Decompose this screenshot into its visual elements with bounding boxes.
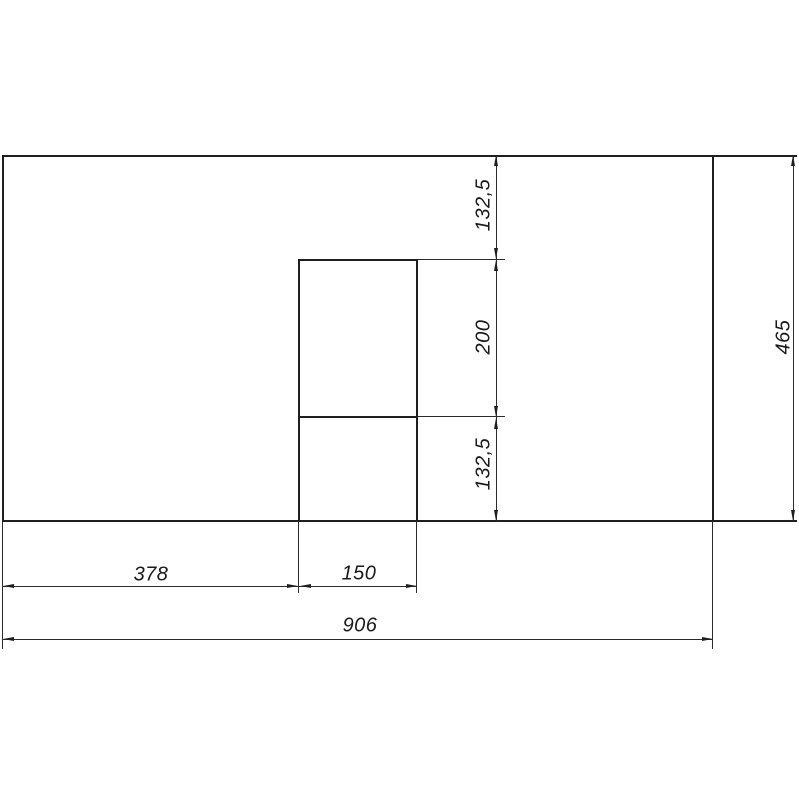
extension-line-cutout-middle [418, 416, 505, 417]
technical-drawing-canvas: 132,5 200 132,5 465 378 150 906 [0, 0, 799, 799]
arrowhead-icon [494, 418, 498, 429]
dimension-line-vertical-chain [496, 155, 497, 521]
panel-top-edge [2, 155, 797, 157]
arrowhead-icon [3, 637, 14, 641]
dim-label-overall-width: 906 [343, 615, 378, 638]
extension-line-cutout-left [298, 522, 299, 593]
arrowhead-icon [494, 260, 498, 271]
dimension-line-horizontal-chain [3, 586, 417, 587]
dim-label-bottom-segment: 132,5 [473, 438, 496, 491]
arrowhead-icon [494, 155, 498, 166]
arrowhead-icon [494, 248, 498, 259]
panel-right-edge [712, 155, 714, 522]
arrowhead-icon [406, 584, 417, 588]
arrowhead-icon [494, 510, 498, 521]
panel-left-edge [2, 155, 4, 522]
dimension-line-width-total [3, 639, 713, 640]
arrowhead-icon [494, 406, 498, 417]
cutout-left-edge [298, 259, 300, 522]
arrowhead-icon [702, 637, 713, 641]
panel-bottom-edge [2, 520, 797, 522]
arrowhead-icon [287, 584, 298, 588]
dim-label-overall-height: 465 [773, 320, 796, 355]
cutout-middle-edge [298, 416, 418, 418]
extension-line-cutout-top [418, 259, 505, 260]
cutout-right-edge [416, 259, 418, 522]
dim-label-cutout-width: 150 [342, 563, 377, 586]
dim-label-middle-segment: 200 [473, 320, 496, 355]
arrowhead-icon [300, 584, 311, 588]
arrowhead-icon [791, 155, 795, 166]
cutout-top-edge [298, 259, 418, 261]
extension-line-panel-right [712, 522, 713, 649]
arrowhead-icon [3, 584, 14, 588]
extension-line-cutout-right [416, 522, 417, 593]
dim-label-left-offset: 378 [134, 564, 169, 587]
arrowhead-icon [791, 510, 795, 521]
dim-label-top-segment: 132,5 [473, 179, 496, 232]
